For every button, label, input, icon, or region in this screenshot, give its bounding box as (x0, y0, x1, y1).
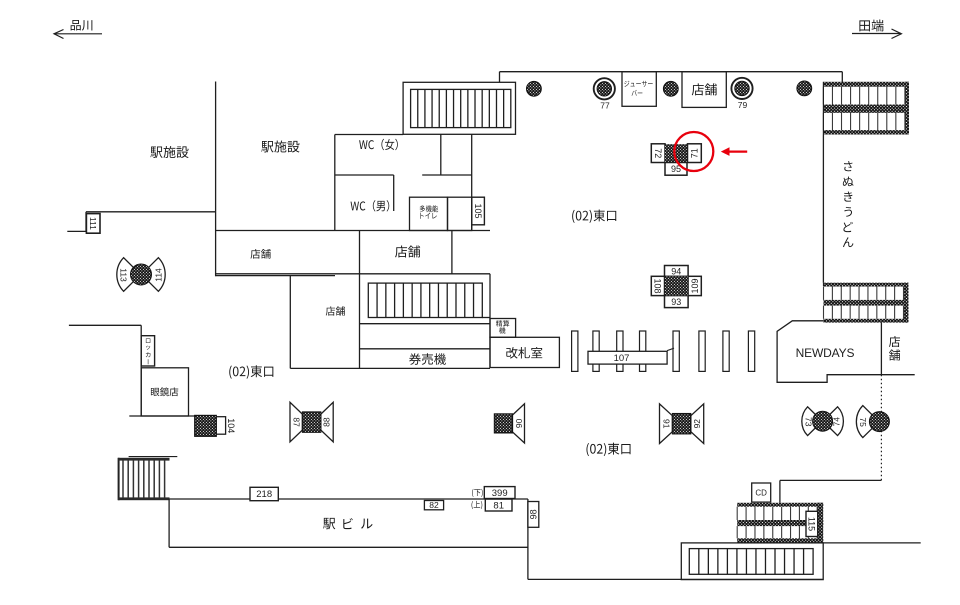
svg-text:98: 98 (529, 509, 539, 519)
svg-text:88: 88 (322, 417, 332, 427)
svg-text:93: 93 (671, 297, 681, 307)
svg-text:399: 399 (492, 488, 508, 499)
svg-text:107: 107 (614, 353, 630, 364)
svg-text:92: 92 (692, 419, 702, 429)
svg-text:218: 218 (256, 489, 272, 500)
svg-text:91: 91 (661, 419, 671, 429)
svg-text:CD: CD (755, 488, 767, 497)
svg-text:109: 109 (690, 278, 700, 293)
svg-text:113: 113 (119, 268, 129, 282)
svg-text:114: 114 (153, 268, 163, 282)
svg-text:94: 94 (671, 266, 681, 276)
svg-text:75: 75 (858, 417, 868, 427)
svg-text:82: 82 (429, 500, 439, 510)
svg-text:87: 87 (292, 417, 302, 427)
svg-text:90: 90 (514, 418, 524, 428)
svg-text:NEWDAYS: NEWDAYS (796, 346, 855, 360)
svg-text:108: 108 (653, 278, 663, 293)
svg-text:105: 105 (473, 203, 483, 218)
svg-text:81: 81 (493, 500, 504, 511)
svg-text:79: 79 (738, 100, 748, 110)
svg-text:72: 72 (653, 148, 663, 158)
svg-text:104: 104 (226, 418, 236, 433)
svg-text:77: 77 (600, 100, 610, 110)
svg-text:115: 115 (807, 517, 817, 531)
svg-text:71: 71 (690, 148, 700, 158)
svg-text:111: 111 (88, 217, 98, 230)
